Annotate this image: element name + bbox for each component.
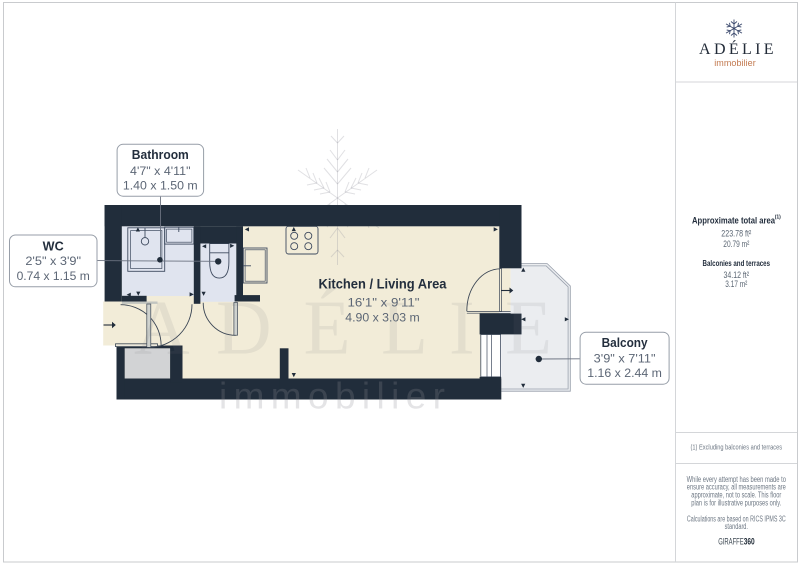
- svg-text:1.40 x 1.50 m: 1.40 x 1.50 m: [123, 180, 198, 192]
- svg-text:(1): (1): [775, 214, 781, 220]
- svg-text:standard.: standard.: [725, 522, 748, 531]
- svg-text:immobilier: immobilier: [714, 58, 756, 68]
- svg-text:Kitchen / Living Area: Kitchen / Living Area: [319, 277, 447, 292]
- svg-text:223.78 ft²: 223.78 ft²: [721, 229, 751, 239]
- svg-text:3.17 m²: 3.17 m²: [725, 279, 747, 289]
- svg-text:Balconies and terraces: Balconies and terraces: [703, 259, 771, 268]
- svg-text:0.74 x 1.15 m: 0.74 x 1.15 m: [17, 271, 90, 283]
- svg-text:(1) Excluding balconies and te: (1) Excluding balconies and terraces: [691, 442, 783, 451]
- svg-text:2'5" x 3'9": 2'5" x 3'9": [25, 256, 81, 268]
- svg-text:1.16 x 2.44 m: 1.16 x 2.44 m: [587, 368, 662, 380]
- svg-text:4'7" x 4'11": 4'7" x 4'11": [130, 166, 191, 178]
- svg-text:plan is for illustrative purpo: plan is for illustrative purposes only.: [691, 498, 781, 507]
- svg-text:WC: WC: [43, 240, 64, 254]
- svg-text:16'1" x 9'11": 16'1" x 9'11": [348, 297, 420, 309]
- svg-text:Balcony: Balcony: [602, 336, 648, 350]
- svg-text:4.90 x 3.03 m: 4.90 x 3.03 m: [345, 312, 420, 324]
- svg-text:Bathroom: Bathroom: [132, 148, 189, 162]
- svg-text:GIRAFFE: GIRAFFE: [718, 537, 744, 547]
- svg-text:3'9" x 7'11": 3'9" x 7'11": [594, 354, 656, 366]
- svg-text:Approximate total area: Approximate total area: [692, 215, 776, 225]
- svg-text:360: 360: [744, 537, 755, 547]
- svg-text:20.79 m²: 20.79 m²: [723, 239, 749, 249]
